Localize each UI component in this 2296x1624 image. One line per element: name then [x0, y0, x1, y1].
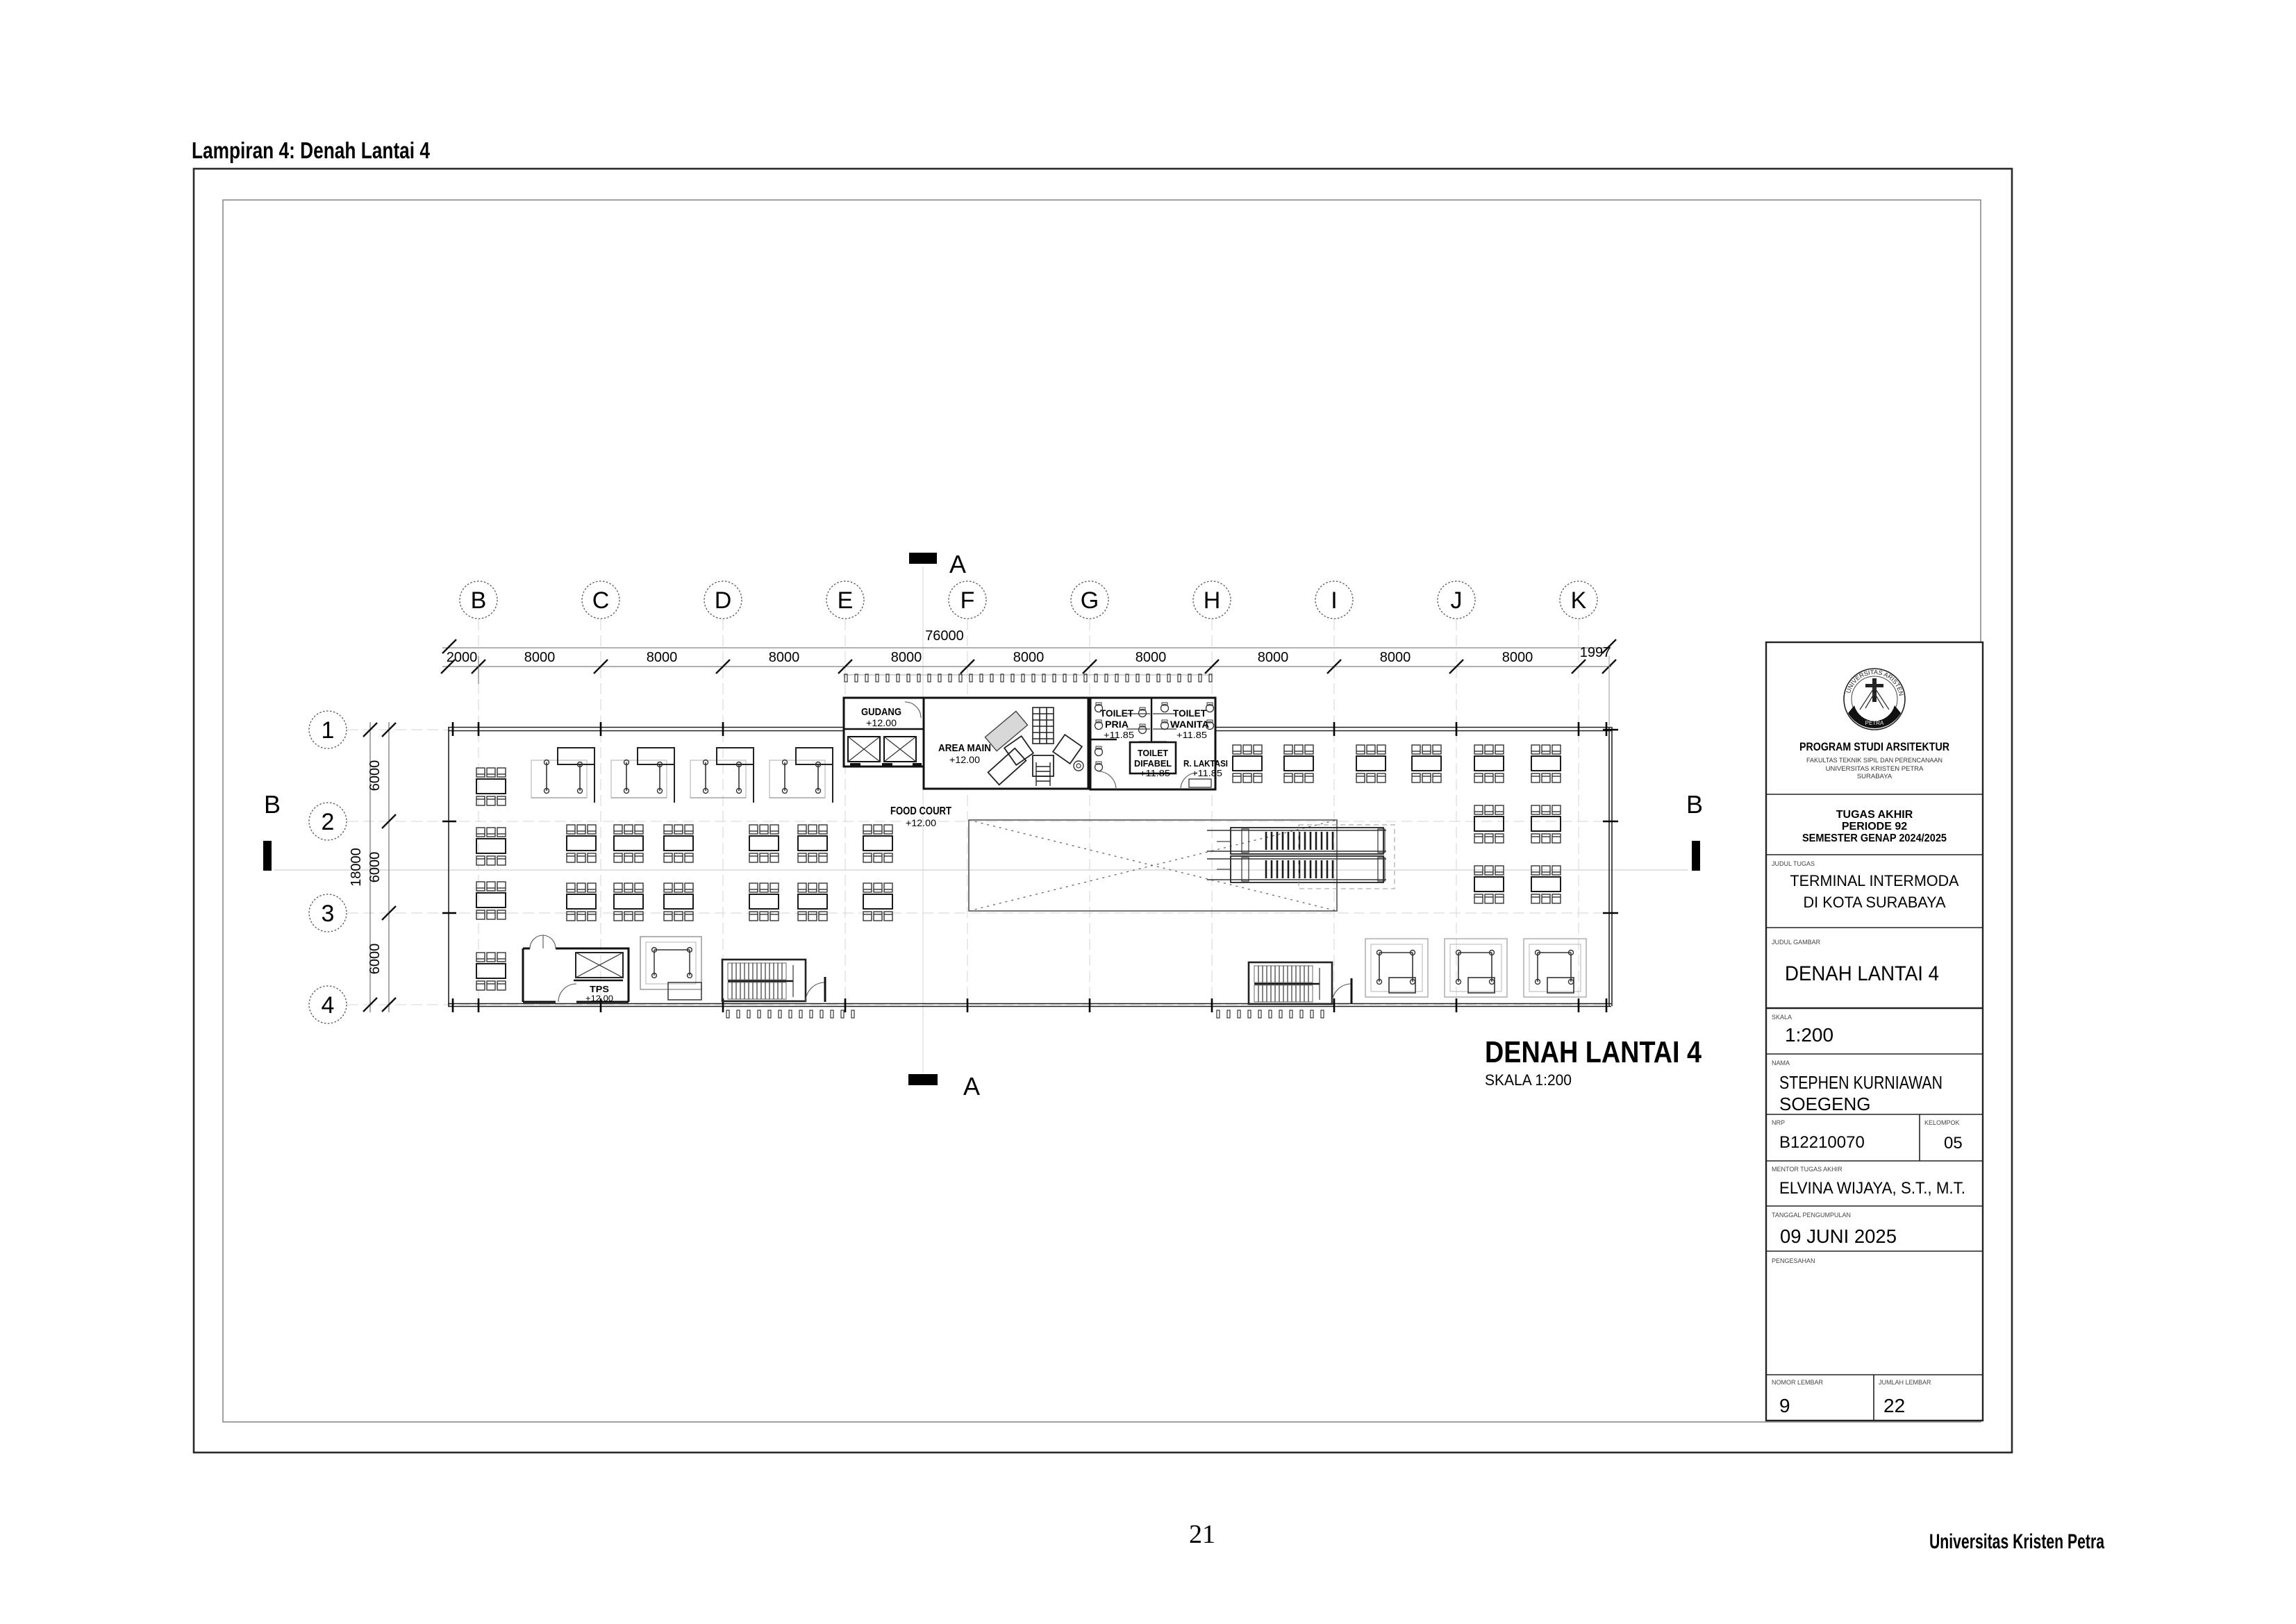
svg-text:TERMINAL INTERMODA: TERMINAL INTERMODA — [1790, 872, 1959, 889]
svg-text:09 JUNI 2025: 09 JUNI 2025 — [1780, 1225, 1897, 1247]
svg-text:ELVINA WIJAYA, S.T., M.T.: ELVINA WIJAYA, S.T., M.T. — [1779, 1179, 1965, 1198]
svg-text:AREA MAIN: AREA MAIN — [938, 742, 991, 754]
svg-text:G: G — [1081, 587, 1099, 614]
svg-text:PROGRAM STUDI ARSITEKTUR: PROGRAM STUDI ARSITEKTUR — [1799, 740, 1949, 753]
svg-text:C: C — [592, 587, 610, 614]
svg-text:22: 22 — [1883, 1395, 1905, 1416]
svg-text:MENTOR TUGAS AKHIR: MENTOR TUGAS AKHIR — [1772, 1166, 1842, 1173]
svg-text:DENAH LANTAI 4: DENAH LANTAI 4 — [1485, 1035, 1702, 1069]
svg-text:1:200: 1:200 — [1785, 1024, 1833, 1046]
svg-text:DIFABEL: DIFABEL — [1134, 758, 1172, 769]
svg-text:A: A — [963, 1072, 980, 1100]
svg-text:SURABAYA: SURABAYA — [1857, 773, 1892, 780]
svg-text:I: I — [1331, 587, 1337, 614]
svg-text:KELOMPOK: KELOMPOK — [1924, 1119, 1960, 1126]
svg-text:B: B — [1686, 790, 1703, 819]
svg-text:8000: 8000 — [647, 650, 678, 665]
svg-text:FAKULTAS TEKNIK SIPIL DAN PERE: FAKULTAS TEKNIK SIPIL DAN PERENCANAAN — [1806, 757, 1943, 764]
svg-text:E: E — [838, 587, 854, 614]
svg-text:8000: 8000 — [1380, 650, 1411, 665]
svg-text:9: 9 — [1779, 1395, 1790, 1416]
svg-text:+12.00: +12.00 — [866, 717, 897, 728]
svg-text:K: K — [1571, 587, 1587, 614]
svg-text:NOMOR LEMBAR: NOMOR LEMBAR — [1772, 1379, 1824, 1386]
svg-text:05: 05 — [1944, 1134, 1963, 1153]
svg-text:DI KOTA SURABAYA: DI KOTA SURABAYA — [1804, 894, 1946, 911]
svg-text:FOOD COURT: FOOD COURT — [890, 805, 951, 817]
svg-text:NRP: NRP — [1772, 1119, 1785, 1126]
svg-text:B: B — [471, 587, 487, 614]
svg-text:TOILET: TOILET — [1100, 708, 1133, 719]
svg-text:PRIA: PRIA — [1105, 719, 1129, 730]
svg-text:F: F — [960, 587, 975, 614]
svg-text:2: 2 — [322, 809, 335, 835]
svg-text:PENGESAHAN: PENGESAHAN — [1772, 1257, 1815, 1264]
svg-text:Universitas Kristen Petra: Universitas Kristen Petra — [1929, 1530, 2104, 1553]
svg-text:+12.00: +12.00 — [906, 817, 936, 828]
svg-text:1997: 1997 — [1580, 645, 1611, 660]
svg-text:DENAH LANTAI 4: DENAH LANTAI 4 — [1785, 962, 1939, 985]
svg-text:SKALA: SKALA — [1772, 1014, 1792, 1021]
svg-text:+11.85: +11.85 — [1140, 768, 1170, 778]
svg-text:8000: 8000 — [1502, 650, 1533, 665]
svg-text:76000: 76000 — [925, 628, 964, 644]
svg-text:TOILET: TOILET — [1173, 708, 1206, 719]
svg-text:2000: 2000 — [447, 650, 478, 665]
svg-text:+12.00: +12.00 — [949, 754, 980, 765]
svg-text:J: J — [1451, 587, 1463, 614]
svg-text:8000: 8000 — [769, 650, 800, 665]
svg-text:PETRA: PETRA — [1865, 720, 1884, 726]
svg-text:6000: 6000 — [367, 944, 383, 975]
svg-text:8000: 8000 — [891, 650, 922, 665]
svg-text:NAMA: NAMA — [1772, 1060, 1790, 1066]
svg-text:D: D — [715, 587, 732, 614]
svg-text:TOILET: TOILET — [1138, 748, 1168, 758]
svg-text:1: 1 — [322, 717, 335, 744]
svg-text:SEMESTER GENAP 2024/2025: SEMESTER GENAP 2024/2025 — [1802, 832, 1947, 844]
svg-text:TANGGAL PENGUMPULAN: TANGGAL PENGUMPULAN — [1772, 1212, 1851, 1219]
svg-text:+11.85: +11.85 — [1104, 730, 1134, 740]
svg-text:JUMLAH LEMBAR: JUMLAH LEMBAR — [1879, 1379, 1931, 1386]
svg-text:SKALA 1:200: SKALA 1:200 — [1485, 1071, 1572, 1089]
svg-text:3: 3 — [322, 901, 335, 927]
svg-text:6000: 6000 — [367, 852, 383, 883]
svg-text:18000: 18000 — [349, 848, 364, 887]
svg-text:TUGAS AKHIR: TUGAS AKHIR — [1836, 809, 1913, 821]
svg-text:PERIODE 92: PERIODE 92 — [1842, 821, 1907, 832]
svg-text:Lampiran 4: Denah Lantai 4: Lampiran 4: Denah Lantai 4 — [192, 137, 431, 163]
svg-text:B12210070: B12210070 — [1779, 1133, 1865, 1152]
svg-text:+12.00: +12.00 — [585, 994, 613, 1003]
svg-text:21: 21 — [1189, 1520, 1215, 1549]
svg-text:TPS: TPS — [590, 984, 609, 994]
svg-text:+11.85: +11.85 — [1176, 730, 1207, 740]
svg-text:SOEGENG: SOEGENG — [1779, 1094, 1870, 1114]
svg-text:UNIVERSITAS KRISTEN PETRA: UNIVERSITAS KRISTEN PETRA — [1826, 765, 1924, 773]
svg-text:A: A — [949, 550, 966, 578]
svg-text:8000: 8000 — [1135, 650, 1167, 665]
svg-text:8000: 8000 — [1258, 650, 1289, 665]
svg-text:R. LAKTASI: R. LAKTASI — [1183, 758, 1228, 769]
svg-text:H: H — [1204, 587, 1221, 614]
svg-text:B: B — [264, 790, 281, 819]
svg-text:WANITA: WANITA — [1170, 719, 1209, 730]
svg-text:GUDANG: GUDANG — [861, 706, 901, 718]
svg-text:STEPHEN KURNIAWAN: STEPHEN KURNIAWAN — [1779, 1072, 1943, 1093]
svg-text:4: 4 — [322, 992, 335, 1019]
svg-text:JUDUL TUGAS: JUDUL TUGAS — [1772, 860, 1815, 867]
svg-text:JUDUL GAMBAR: JUDUL GAMBAR — [1772, 939, 1821, 946]
svg-text:8000: 8000 — [1013, 650, 1045, 665]
svg-text:8000: 8000 — [524, 650, 556, 665]
svg-text:6000: 6000 — [367, 760, 383, 792]
